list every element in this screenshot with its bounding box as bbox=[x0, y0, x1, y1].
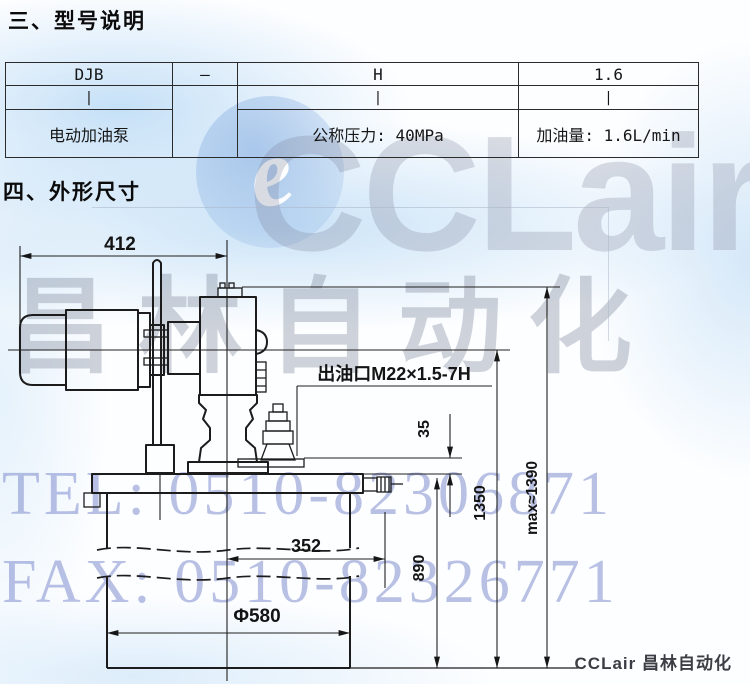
scanned-product-page: e CCLair 昌林自动化 TEL: 0510-82306871 FAX: 0… bbox=[0, 0, 750, 684]
code-flow-cell: 1.6 bbox=[519, 63, 699, 86]
connector-cell-1: | bbox=[6, 86, 173, 110]
svg-text:35: 35 bbox=[416, 420, 433, 438]
dash-empty-cell bbox=[173, 86, 238, 158]
connector-cell-3: | bbox=[519, 86, 699, 110]
meaning-pump-cell: 电动加油泵 bbox=[6, 110, 173, 158]
footer-brand: CCLair 昌林自动化 bbox=[575, 649, 732, 674]
dimension-412: 412 bbox=[20, 234, 227, 350]
oil-drum bbox=[97, 493, 578, 668]
model-code-table: DJB — H 1.6 | | | 电动加油泵 公称压力: 40MPa 加油量:… bbox=[5, 62, 699, 158]
code-dash-cell: — bbox=[173, 63, 238, 86]
dimension-dia580: Φ580 bbox=[107, 606, 350, 633]
svg-text:max≈1390: max≈1390 bbox=[524, 461, 541, 535]
svg-text:412: 412 bbox=[104, 234, 136, 255]
dimension-890: 890 bbox=[411, 478, 437, 668]
code-series-cell: DJB bbox=[6, 63, 173, 86]
svg-text:出油口M22×1.5-7H: 出油口M22×1.5-7H bbox=[317, 363, 471, 384]
dimension-352: 352 bbox=[227, 512, 385, 588]
meaning-pressure-cell: 公称压力: 40MPa bbox=[238, 110, 519, 158]
document-content: 三、型号说明 DJB — H 1.6 | | | 电动加油泵 公称压力: 40M… bbox=[0, 0, 750, 684]
dimension-1350: 1350 bbox=[472, 350, 497, 668]
pump-body bbox=[168, 283, 268, 473]
svg-text:Φ580: Φ580 bbox=[233, 606, 280, 627]
lift-rod bbox=[146, 260, 174, 520]
relief-valve bbox=[238, 404, 304, 467]
cover-plate bbox=[84, 474, 403, 507]
connector-cell-2: | bbox=[238, 86, 519, 110]
section-title-model: 三、型号说明 bbox=[8, 5, 146, 35]
meaning-flow-cell: 加油量: 1.6L/min bbox=[519, 110, 699, 158]
code-pressure-cell: H bbox=[238, 63, 519, 86]
svg-text:352: 352 bbox=[291, 536, 321, 556]
outline-drawing: 412 出油口M22×1.5-7H 35 352 bbox=[0, 200, 750, 684]
dimension-max1390: max≈1390 bbox=[242, 287, 560, 668]
svg-text:1350: 1350 bbox=[472, 485, 489, 521]
svg-text:890: 890 bbox=[411, 555, 428, 582]
